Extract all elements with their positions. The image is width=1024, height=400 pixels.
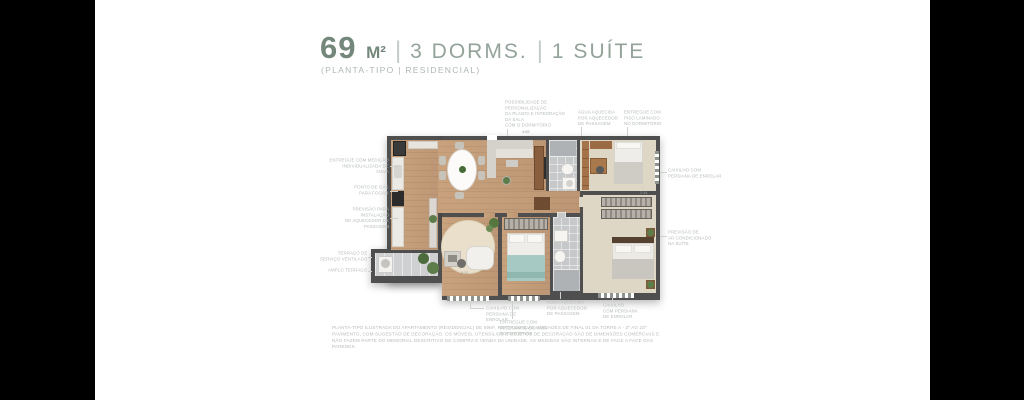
suite-toilet	[554, 250, 566, 263]
bed-pillow	[616, 142, 641, 149]
bedroom1-shelf	[590, 141, 612, 149]
plant-icon	[647, 281, 654, 288]
office-window	[447, 296, 489, 301]
bedroom2-window	[508, 296, 540, 301]
bedroom1-wardrobe	[582, 141, 589, 190]
bed-pillow	[527, 234, 543, 243]
coffee-table	[506, 160, 518, 167]
bedroom2-wardrobe	[504, 218, 548, 230]
toilet	[561, 163, 574, 175]
plant-icon	[429, 215, 437, 223]
leader-line	[560, 292, 561, 299]
bed-pillow	[615, 245, 632, 253]
shower	[550, 141, 576, 157]
dining-chair	[478, 171, 485, 180]
dining-chair	[478, 156, 485, 165]
desk-chair	[596, 166, 604, 174]
dining-chair	[439, 156, 446, 165]
door-gap-suite-bath	[557, 212, 566, 218]
annotation-water-metering: ENTREGUE COM MEDIÇÃO INDIVIDUALIZADA DE …	[330, 158, 389, 175]
plant-icon	[503, 177, 510, 184]
refrigerator	[393, 141, 406, 156]
washer-door	[381, 259, 390, 268]
leader-line	[612, 298, 613, 302]
leader-line	[507, 129, 508, 136]
leader-line	[390, 218, 398, 219]
office-chair	[457, 259, 466, 268]
leader-line	[390, 166, 398, 167]
leader-line	[390, 191, 398, 192]
disclaimer-text: PLANTA-TIPO ILUSTRADA DO APARTAMENTO (RE…	[332, 325, 667, 351]
tv-console	[534, 146, 544, 190]
leader-line	[581, 127, 582, 136]
plant-icon	[647, 229, 654, 236]
slide: 69 M²|3 DORMS.|1 SUÍTE (PLANTA-TIPO | RE…	[0, 0, 1024, 400]
plant-icon	[427, 262, 439, 274]
leader-line	[368, 257, 372, 258]
suite-wardrobe-1	[601, 197, 652, 207]
table-plant-icon	[459, 166, 466, 173]
bed-pillow	[509, 234, 525, 243]
door-gap-suite	[579, 197, 584, 207]
dining-chair	[455, 142, 464, 149]
annotation-heater-provision: PREVISÃO PARA INSTALAÇÃO DE AQUECEDOR DE…	[345, 207, 389, 230]
annotation-customization: POSSIBILIDADE DE PERSONALIZAÇÃO DA PLANT…	[505, 100, 565, 129]
annotation-hot-water-bottom: ÁGUA AQUECIDA POR AQUECEDOR DE PASSAGEM	[547, 300, 587, 317]
tv	[544, 157, 546, 179]
corridor-cabinet	[534, 197, 550, 210]
dimension-label: 4.65	[522, 130, 529, 134]
dining-chair	[439, 171, 446, 180]
laptop	[448, 255, 457, 262]
annotation-gas-point: PONTO DE GÁS PARA FOGÃO	[355, 185, 389, 196]
stove	[392, 191, 404, 206]
dimension-label: 2.44	[640, 191, 647, 195]
sofa-back	[487, 140, 533, 149]
dining-chair	[455, 192, 464, 199]
annotation-ample-terrace: AMPLO TERRAÇO	[328, 268, 367, 274]
leader-line	[660, 172, 667, 173]
armchair	[466, 246, 494, 270]
plant-icon	[418, 253, 429, 264]
suite-shower	[554, 269, 579, 291]
leader-line	[512, 302, 513, 319]
leader-line	[660, 236, 667, 237]
sofa-chaise	[487, 149, 496, 178]
kitchen-top-counter	[408, 141, 438, 149]
bed-blanket	[612, 259, 654, 279]
kitchen-island	[429, 198, 437, 248]
plant-icon	[486, 225, 493, 232]
leader-line	[470, 308, 484, 309]
annotation-laminate-top: ENTREGUE COM PISO LAMINADO NO DORMITÓRIO	[624, 110, 662, 127]
annotation-shutter-right: CAIXILHO COM PERSIANA DE ENROLAR	[668, 168, 721, 179]
bed-throw	[507, 272, 545, 278]
bed-blanket	[614, 162, 643, 184]
annotation-hot-water-top: ÁGUA AQUECIDA POR AQUECEDOR DE PASSAGEM	[578, 110, 618, 127]
dimension-label: 5.21	[461, 271, 468, 275]
suite-wardrobe-2	[601, 209, 652, 219]
annotation-service-terrace: TERRAÇO DE SERVIÇO VENTILADO	[320, 251, 367, 262]
bedroom1-window	[655, 151, 659, 184]
suite-bath-sink	[554, 230, 568, 242]
bed-pillow	[634, 245, 651, 253]
kitchen-counter-2	[392, 207, 404, 247]
sink-bowl	[566, 180, 573, 187]
annotation-ac-suite: PREVISÃO DE AR CONDICIONADO NA SUÍTE	[668, 230, 711, 247]
leader-line	[627, 127, 628, 136]
leader-line	[368, 271, 372, 272]
suite-window	[598, 293, 634, 298]
annotation-shutter-bottom-right: CAIXILHO COM PERSIANA DE ENROLAR	[603, 303, 638, 320]
